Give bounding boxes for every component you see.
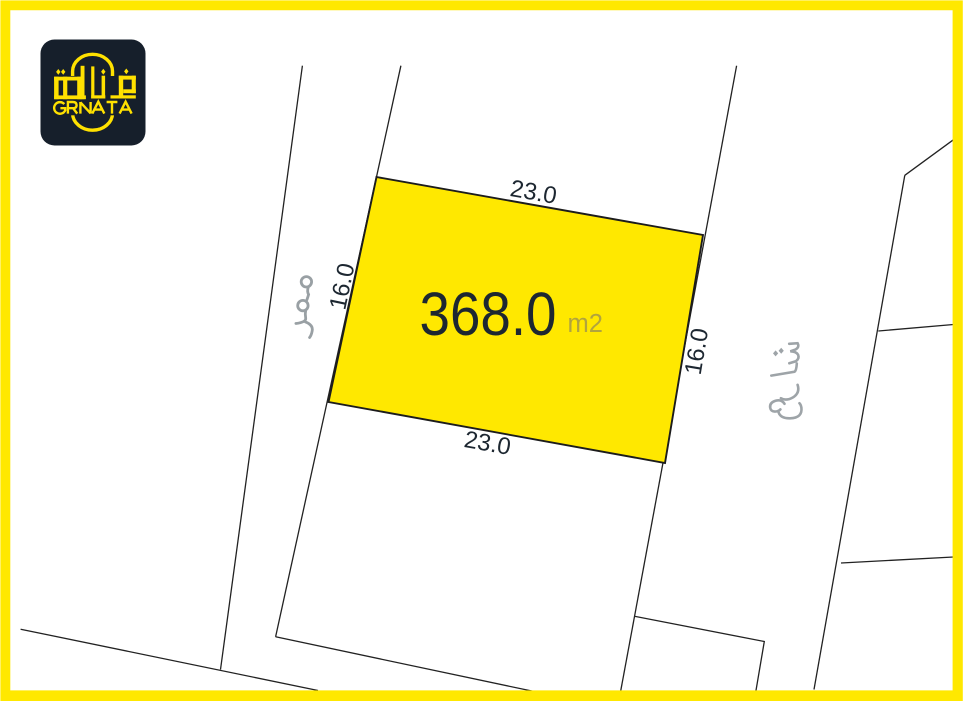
svg-text:m2: m2 (568, 310, 603, 338)
svg-text:368.0: 368.0 (420, 280, 557, 348)
